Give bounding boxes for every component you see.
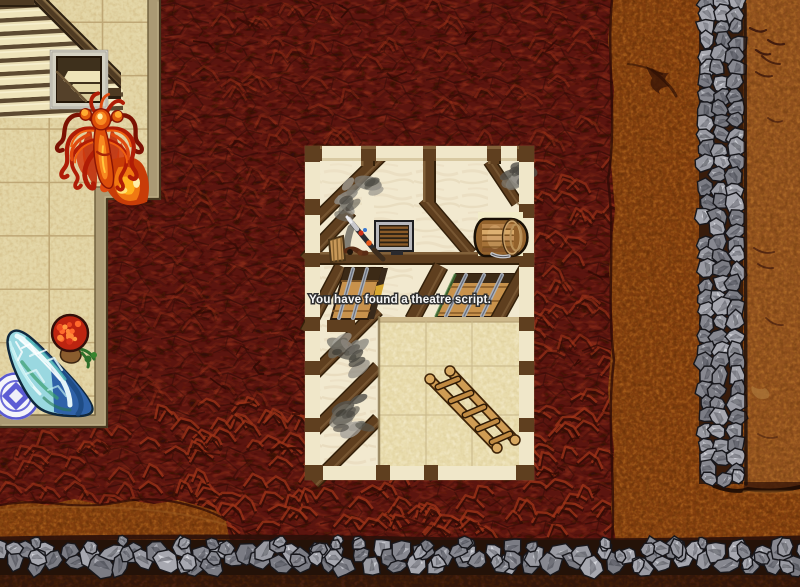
svg-text:You have found a theatre scrip: You have found a theatre script. [309, 293, 491, 306]
